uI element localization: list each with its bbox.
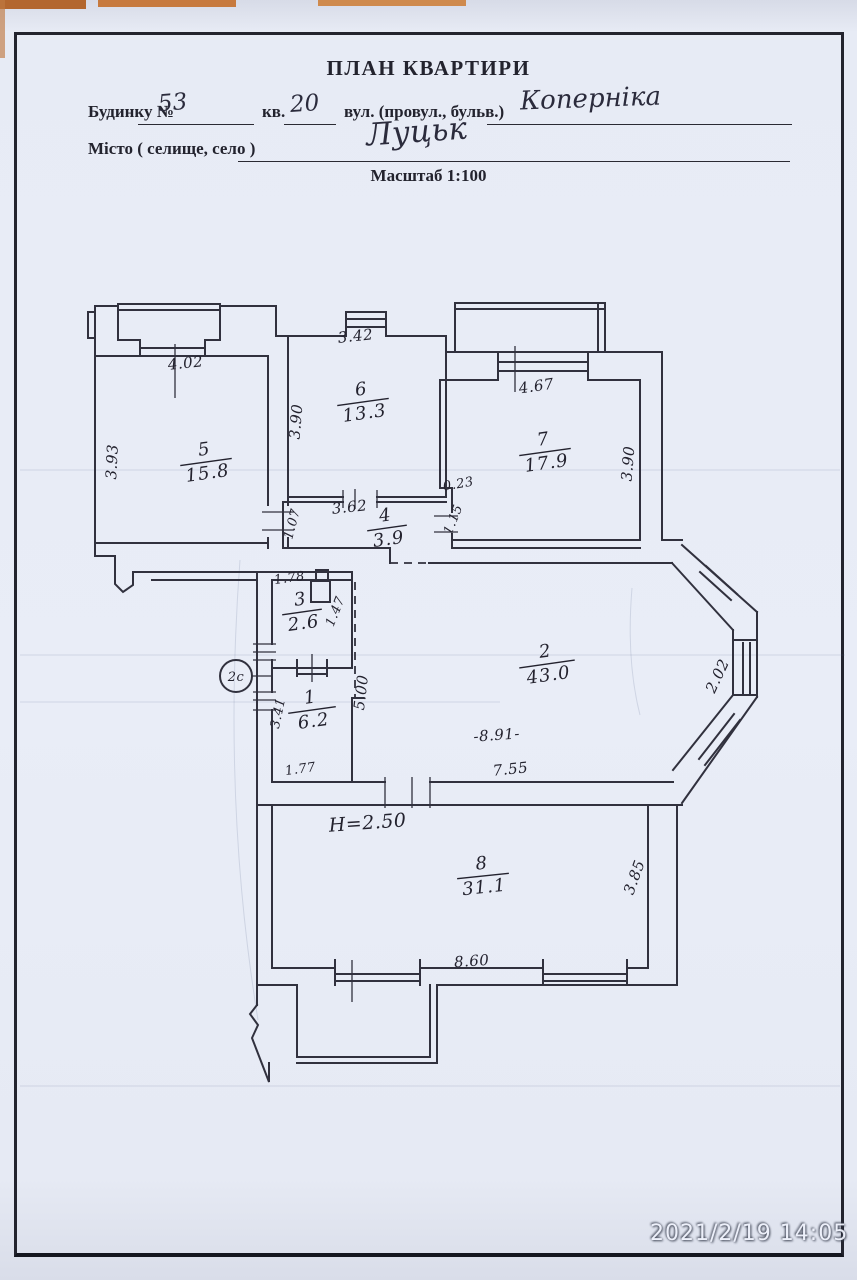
dim-top-room5: 4.02	[166, 352, 204, 374]
dim-jog-height: 1.15	[441, 503, 467, 537]
room-area: 3.9	[371, 527, 405, 552]
scanned-floor-plan-page: ПЛАН КВАРТИРИ Будинку № 53 кв. 20 вул. (…	[0, 0, 857, 1280]
wall-outline	[257, 805, 677, 1063]
dim-top-room7: 4.67	[517, 375, 556, 398]
room-3-walls: 2с	[220, 570, 352, 710]
room-number: 2	[537, 640, 553, 663]
dimension-labels: 4.02 3.93 3.42 3.90 4.67 3.90 0.23 1.15 …	[102, 325, 733, 971]
room-6-label: 6 13.3	[334, 376, 392, 428]
dim-bottom-room8: 8.60	[453, 951, 490, 971]
scan-curve	[234, 560, 258, 1020]
camera-timestamp: 2021/2/19 14:05	[650, 1221, 848, 1246]
door-ticks	[385, 777, 430, 808]
dim-bottom-room1: 1.77	[284, 760, 317, 779]
room-4-label: 4 3.9	[364, 502, 410, 552]
room-1-label: 1 6.2	[285, 684, 339, 735]
room-number: 3	[293, 588, 308, 611]
room-8-label: 8 31.1	[455, 850, 511, 900]
wall-outline	[440, 303, 662, 548]
floor-plan-drawing: 2с 1 6.2 2 43.0 3	[0, 0, 857, 1280]
dim-left-room6: 3.90	[286, 403, 307, 440]
room-8-walls	[257, 805, 677, 1063]
loggia-top-left	[118, 304, 220, 340]
dim-bottom-room2: 7.55	[492, 758, 529, 780]
room-2-label: 2 43.0	[516, 637, 578, 689]
dim-right-room8: 3.85	[620, 858, 649, 897]
room-number: 1	[303, 686, 318, 709]
dim-top-room3: 1.78	[273, 569, 306, 588]
circle-mark-label: 2с	[227, 670, 245, 685]
ceiling-height-note: H=2.50	[327, 809, 407, 836]
dim-top-room6: 3.42	[337, 325, 374, 347]
room-number: 7	[536, 428, 551, 451]
room-3-label: 3 2.6	[279, 586, 325, 636]
dimension-tick	[175, 344, 294, 530]
dim-top-room4: 3.62	[331, 496, 368, 518]
dim-left-room5: 3.93	[102, 444, 122, 480]
dim-bay-window: 2.02	[701, 656, 733, 697]
room-7-walls	[434, 303, 662, 548]
room-number: 6	[354, 378, 369, 401]
dim-room2-width: -8.91-	[473, 724, 521, 745]
room-number: 8	[474, 852, 489, 874]
dim-corridor-length: 5.00	[350, 674, 372, 711]
room-area: 2.6	[285, 611, 320, 636]
room-5-walls	[95, 304, 294, 548]
wall-outline	[95, 356, 288, 548]
scan-curve	[630, 588, 640, 715]
room-area: 6.2	[296, 709, 330, 734]
room-7-label: 7 17.9	[516, 426, 574, 478]
dim-right-room3: 1.47	[323, 594, 349, 629]
dim-right-room7: 3.90	[618, 445, 639, 482]
room-5-label: 5 15.8	[177, 436, 235, 488]
room-number: 4	[377, 504, 393, 527]
room-area: 31.1	[461, 875, 507, 900]
room-number: 5	[197, 438, 212, 461]
